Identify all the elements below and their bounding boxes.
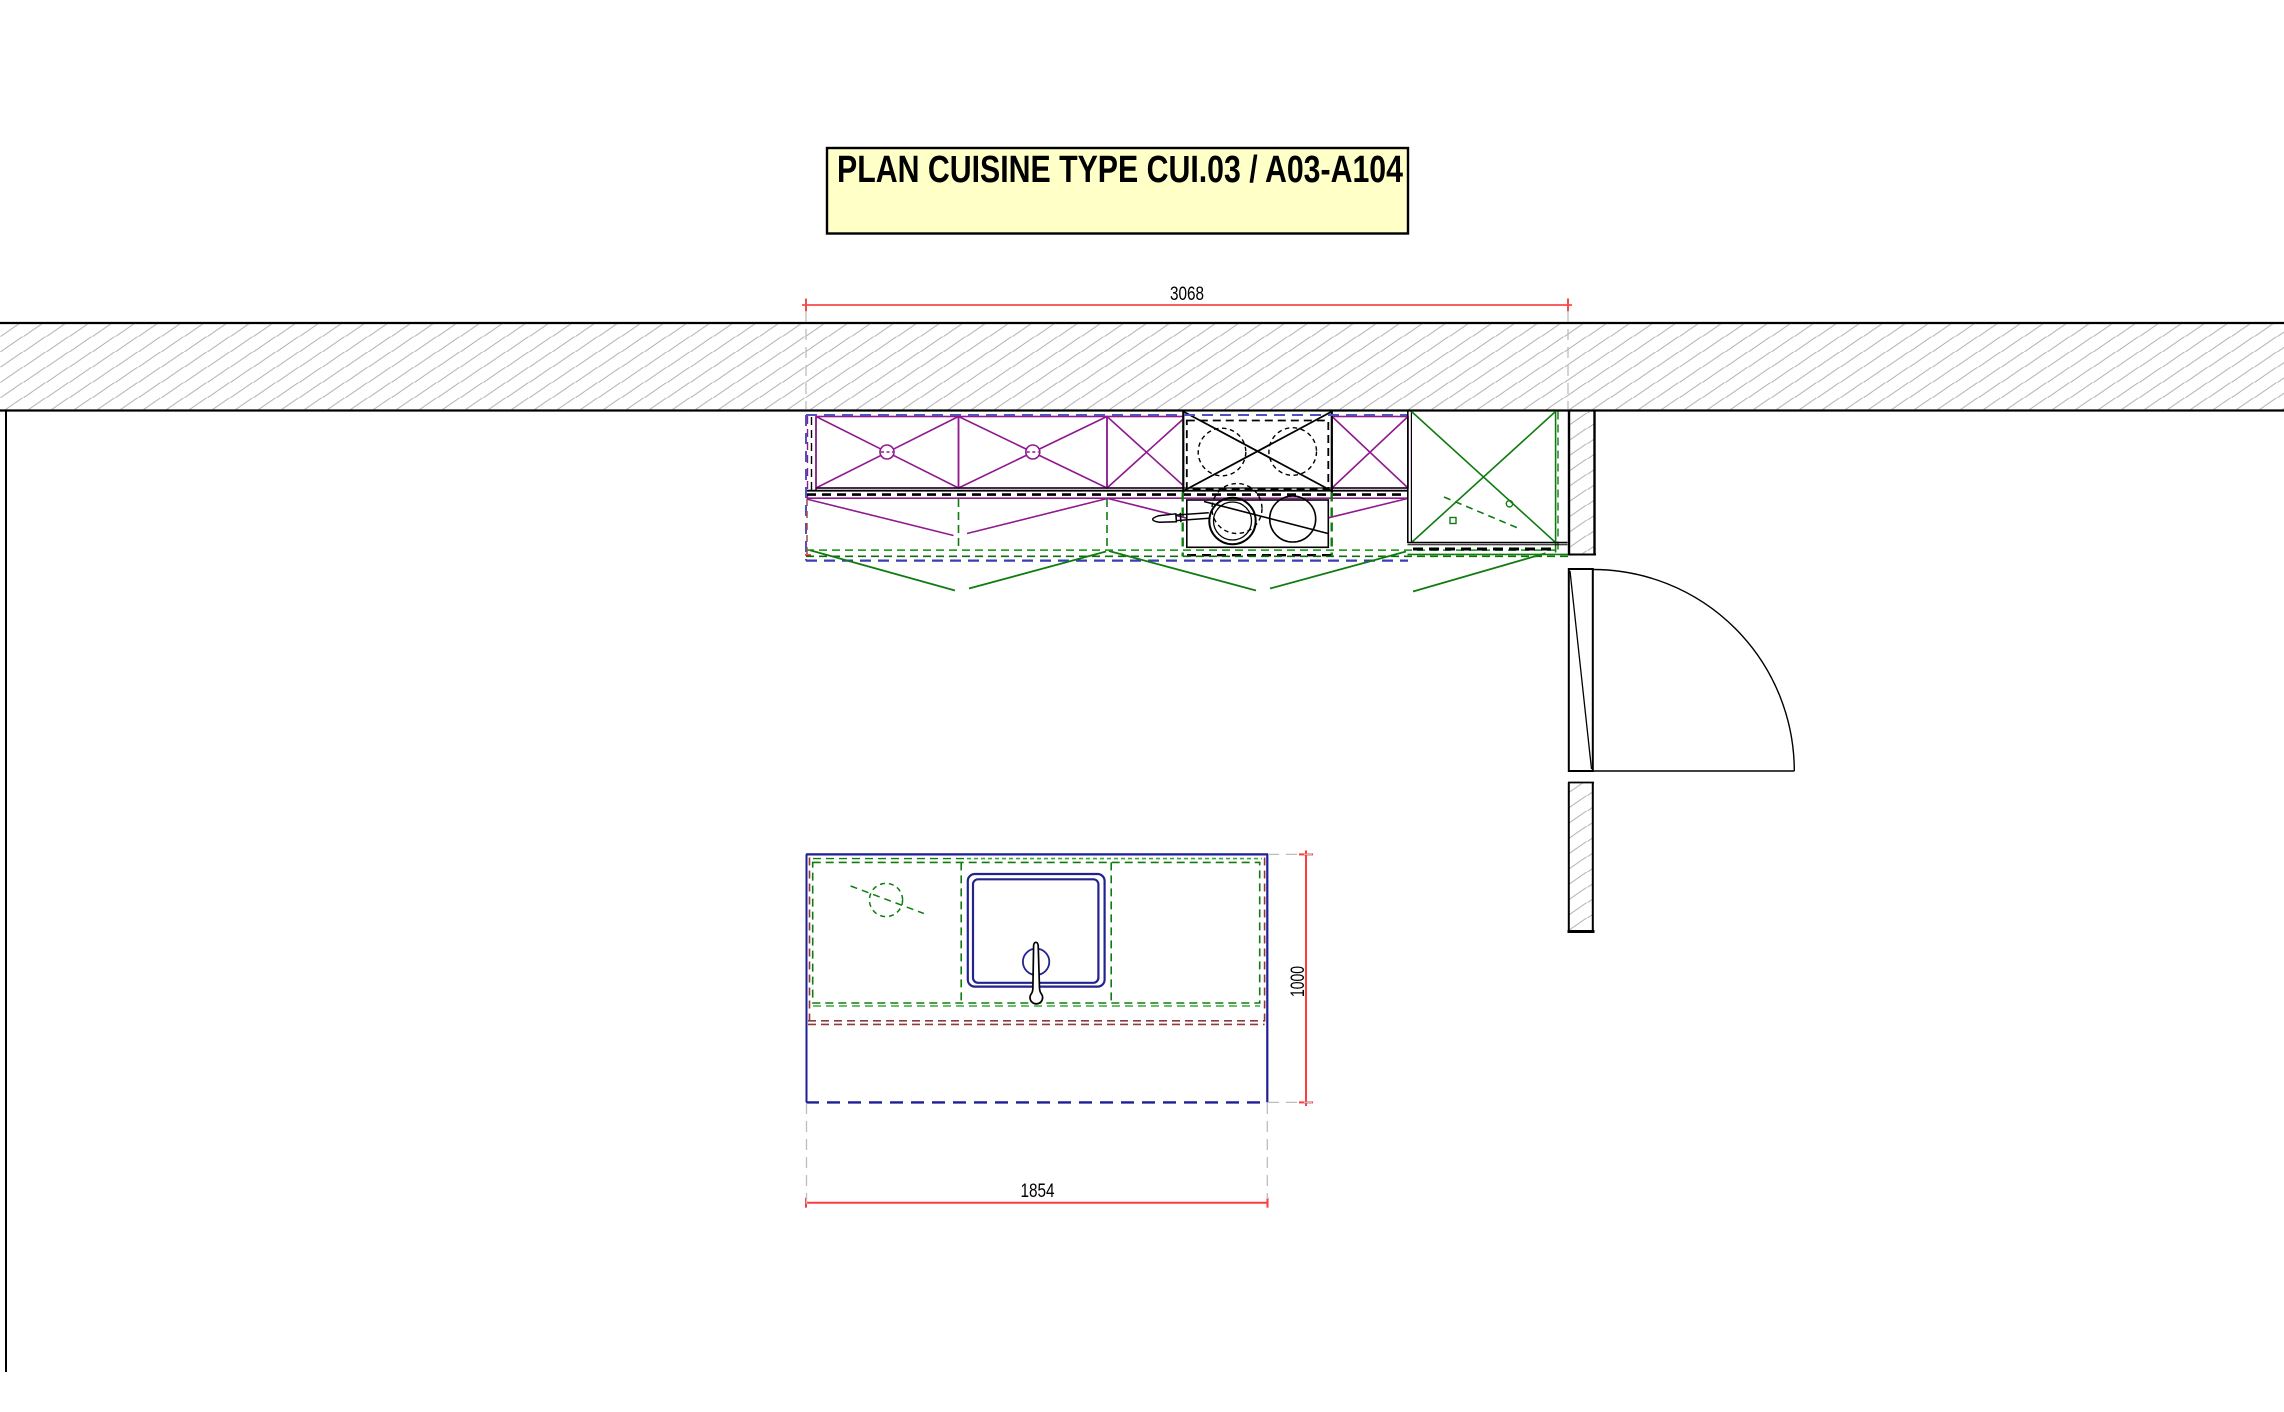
svg-text:PLAN CUISINE TYPE CUI.03 / A03: PLAN CUISINE TYPE CUI.03 / A03-A104: [837, 149, 1403, 191]
svg-text:1000: 1000: [1288, 966, 1309, 997]
svg-text:1854: 1854: [1021, 1181, 1055, 1202]
svg-text:3068: 3068: [1170, 284, 1204, 305]
